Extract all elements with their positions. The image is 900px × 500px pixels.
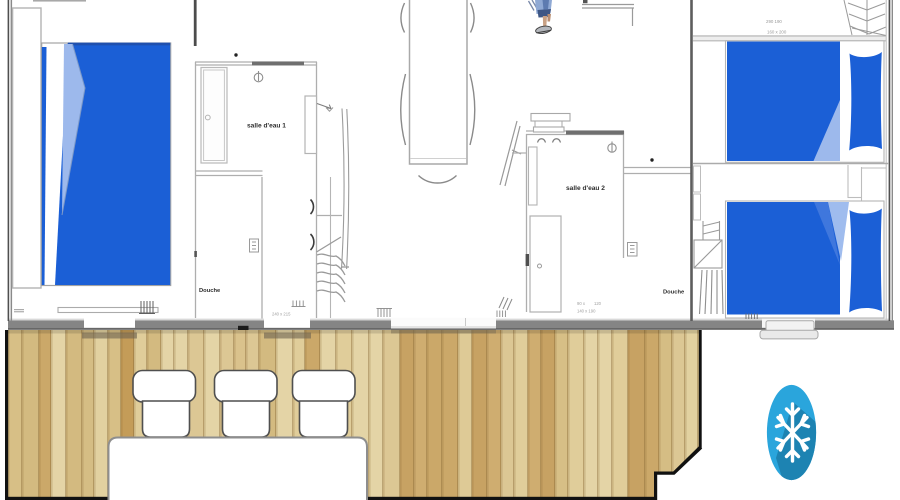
svg-text:240 x 215: 240 x 215 — [272, 312, 291, 317]
svg-text:salle d'eau 1: salle d'eau 1 — [247, 123, 286, 130]
svg-text:90 x: 90 x — [577, 301, 586, 306]
svg-text:160 x 200: 160 x 200 — [767, 30, 787, 35]
svg-text:salle d'eau 2: salle d'eau 2 — [566, 185, 605, 192]
svg-text:140 x 190: 140 x 190 — [577, 309, 596, 314]
svg-text:Douche: Douche — [199, 288, 221, 294]
svg-text:Douche: Douche — [663, 290, 685, 296]
svg-text:120: 120 — [594, 301, 602, 306]
svg-text:290 190: 290 190 — [766, 19, 782, 24]
